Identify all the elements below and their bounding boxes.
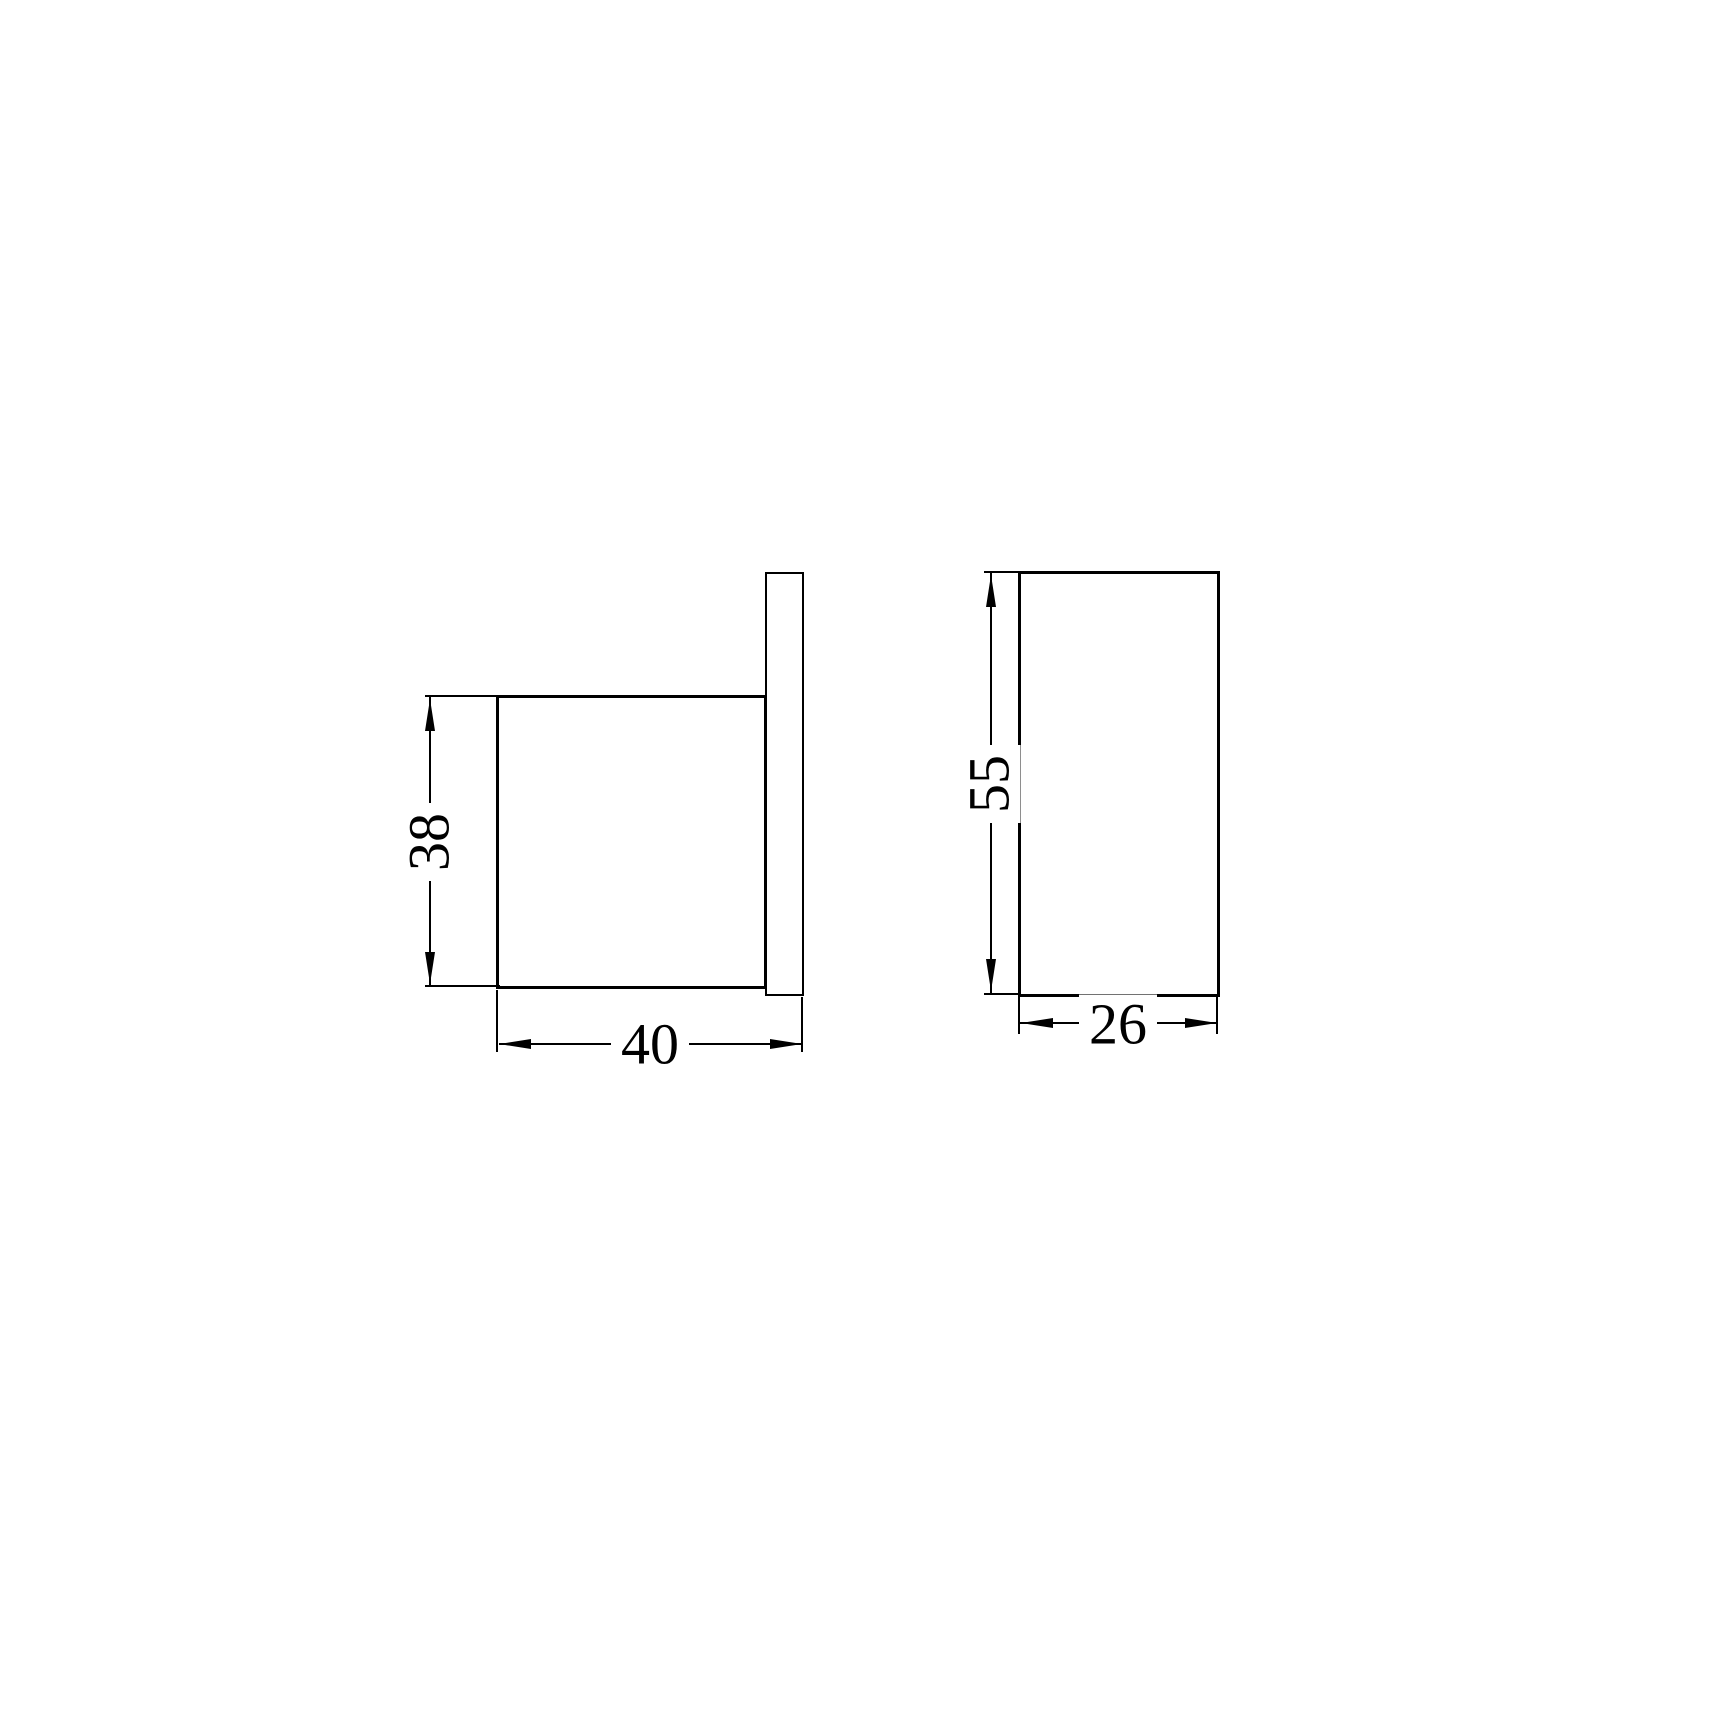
dim-arrow-up-icon (986, 575, 996, 607)
technical-drawing-canvas: 38 40 55 26 (0, 0, 1733, 1733)
side-view-body-outline (496, 695, 767, 989)
dim-arrow-right-icon (770, 1039, 802, 1049)
dim-label-depth: 40 (611, 1015, 689, 1076)
dim-arrow-up-icon (425, 699, 435, 731)
extension-line (496, 990, 498, 1052)
extension-line (425, 695, 500, 697)
front-view-outline (1018, 571, 1220, 997)
dim-arrow-right-icon (1185, 1018, 1217, 1028)
dim-label-height: 38 (400, 803, 461, 881)
dim-label-width: 26 (1079, 995, 1157, 1056)
extension-line (1216, 997, 1218, 1034)
dim-arrow-down-icon (986, 959, 996, 991)
extension-line (1018, 997, 1020, 1034)
side-view-plate-outline (765, 572, 804, 996)
dim-label-height: 55 (960, 745, 1021, 823)
extension-line (425, 985, 500, 987)
dim-arrow-down-icon (425, 952, 435, 984)
dim-arrow-left-icon (1021, 1018, 1053, 1028)
dim-arrow-left-icon (499, 1039, 531, 1049)
